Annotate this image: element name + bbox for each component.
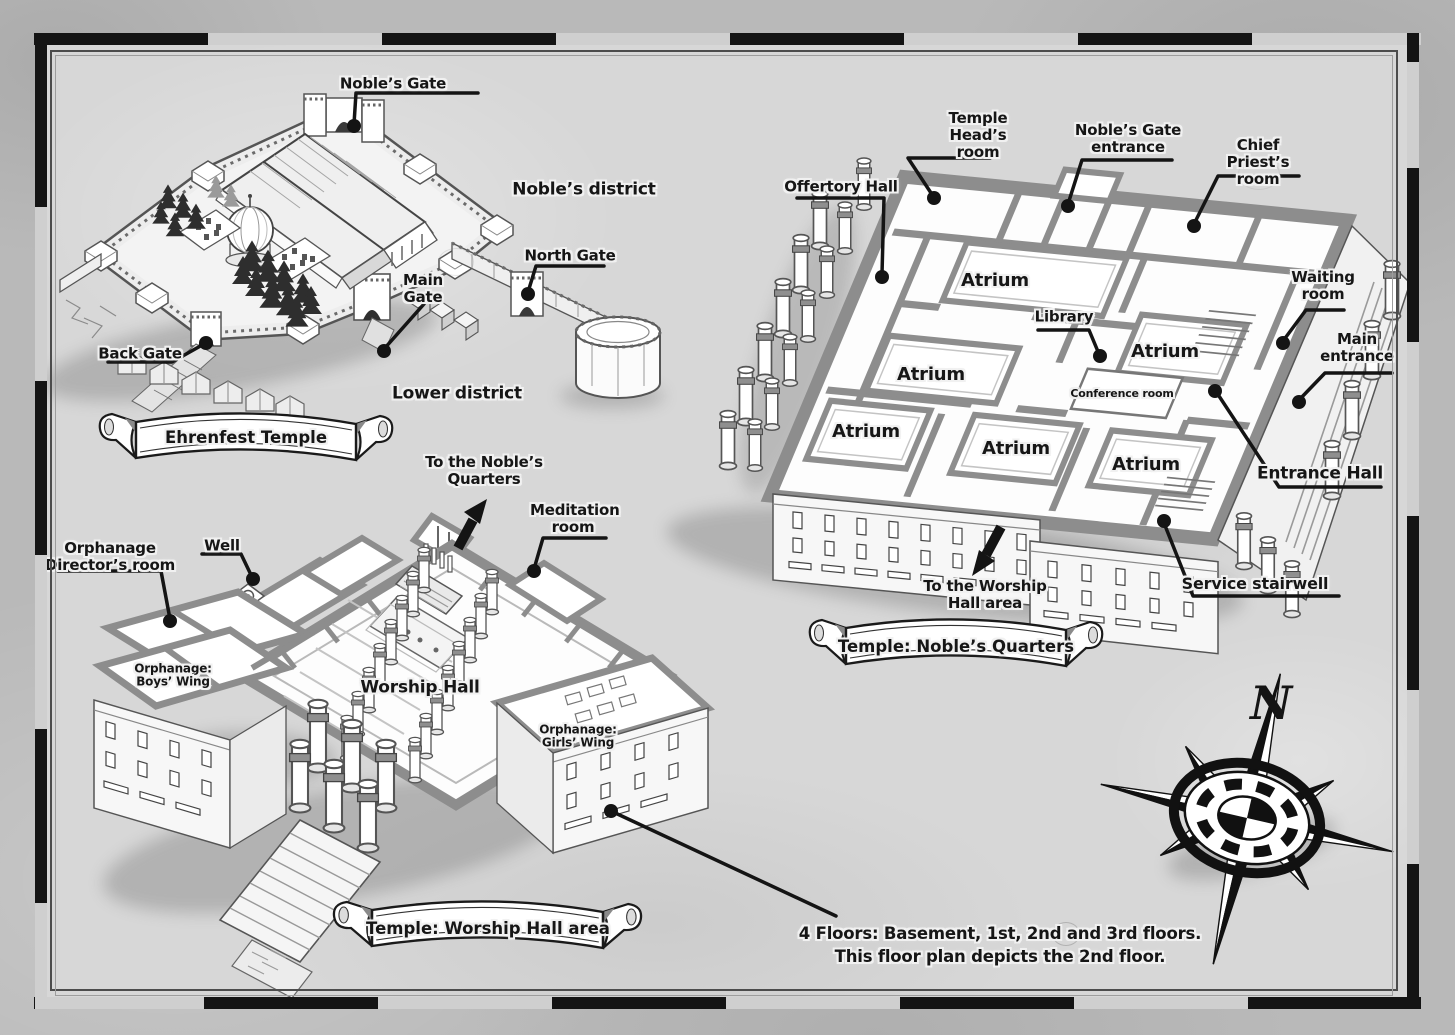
label-well: Well: [204, 538, 240, 555]
label-north-gate: North Gate: [524, 248, 615, 265]
label-entrance-hall: Entrance Hall: [1257, 464, 1383, 483]
label-orphanage-girls-wing: Orphanage: Girls’ Wing: [536, 724, 620, 751]
label-to-worship-hall-area: To the Worship Hall area: [920, 578, 1050, 612]
label-atrium-6: Atrium: [1112, 455, 1180, 475]
label-offertory-hall: Offertory Hall: [784, 179, 897, 196]
frame-band-right: [1407, 33, 1419, 1009]
banner-label-nobles-quarters: Temple: Noble’s Quarters: [838, 638, 1074, 656]
compass-rose: [1067, 640, 1408, 998]
nobles-gate-entrance-passage: [1054, 170, 1120, 201]
label-service-stairwell: Service stairwell: [1182, 575, 1329, 593]
label-conference-room: Conference room: [1070, 388, 1173, 400]
label-waiting-room: Waiting room: [1291, 269, 1355, 303]
footnote-line1: 4 Floors: Basement, 1st, 2nd and 3rd flo…: [799, 925, 1201, 943]
arrow-to-nobles-quarters: [458, 499, 487, 548]
map-page: Noble’s Gate Noble’s district North Gate…: [0, 0, 1455, 1035]
label-main-gate: Main Gate: [400, 272, 446, 306]
label-nobles-gate: Noble’s Gate: [340, 76, 446, 93]
frame-band-bottom: [34, 997, 1421, 1009]
label-atrium-1: Atrium: [961, 271, 1029, 291]
label-atrium-4: Atrium: [832, 422, 900, 442]
label-nobles-gate-entrance: Noble’s Gate entrance: [1069, 122, 1187, 156]
label-orphanage-directors-room: Orphanage Director’s room: [35, 540, 185, 574]
label-temple-heads-room: Temple Head’s room: [932, 110, 1024, 160]
map-illustrations: [46, 45, 1408, 999]
label-atrium-3: Atrium: [1131, 342, 1199, 362]
map-content-clip: [46, 45, 1408, 999]
label-chief-priests-room: Chief Priest’s room: [1208, 137, 1308, 187]
label-meditation-room: Meditation room: [530, 502, 616, 536]
label-orphanage-boys-wing: Orphanage: Boys’ Wing: [131, 663, 215, 690]
label-atrium-2: Atrium: [897, 365, 965, 385]
label-back-gate: Back Gate: [98, 346, 182, 363]
wall-stub: [60, 254, 101, 292]
frame-band-left: [35, 33, 47, 1009]
label-worship-hall: Worship Hall: [360, 678, 479, 697]
ruins-sketch: [66, 300, 116, 338]
banner-label-ehrenfest-temple: Ehrenfest Temple: [165, 429, 327, 447]
label-library: Library: [1035, 309, 1094, 326]
footnote-line2: This floor plan depicts the 2nd floor.: [835, 948, 1166, 966]
label-atrium-5: Atrium: [982, 439, 1050, 459]
round-tower: [576, 317, 660, 398]
compass-north-label: N: [1250, 680, 1292, 726]
label-nobles-district: Noble’s district: [512, 180, 655, 199]
label-lower-district: Lower district: [392, 384, 522, 403]
banner-label-worship-hall-area: Temple: Worship Hall area: [366, 920, 610, 938]
frame-band-top: [34, 33, 1421, 45]
label-to-nobles-quarters: To the Noble’s Quarters: [424, 454, 544, 488]
label-main-entrance: Main entrance: [1317, 331, 1397, 365]
boys-wing: [94, 592, 306, 848]
